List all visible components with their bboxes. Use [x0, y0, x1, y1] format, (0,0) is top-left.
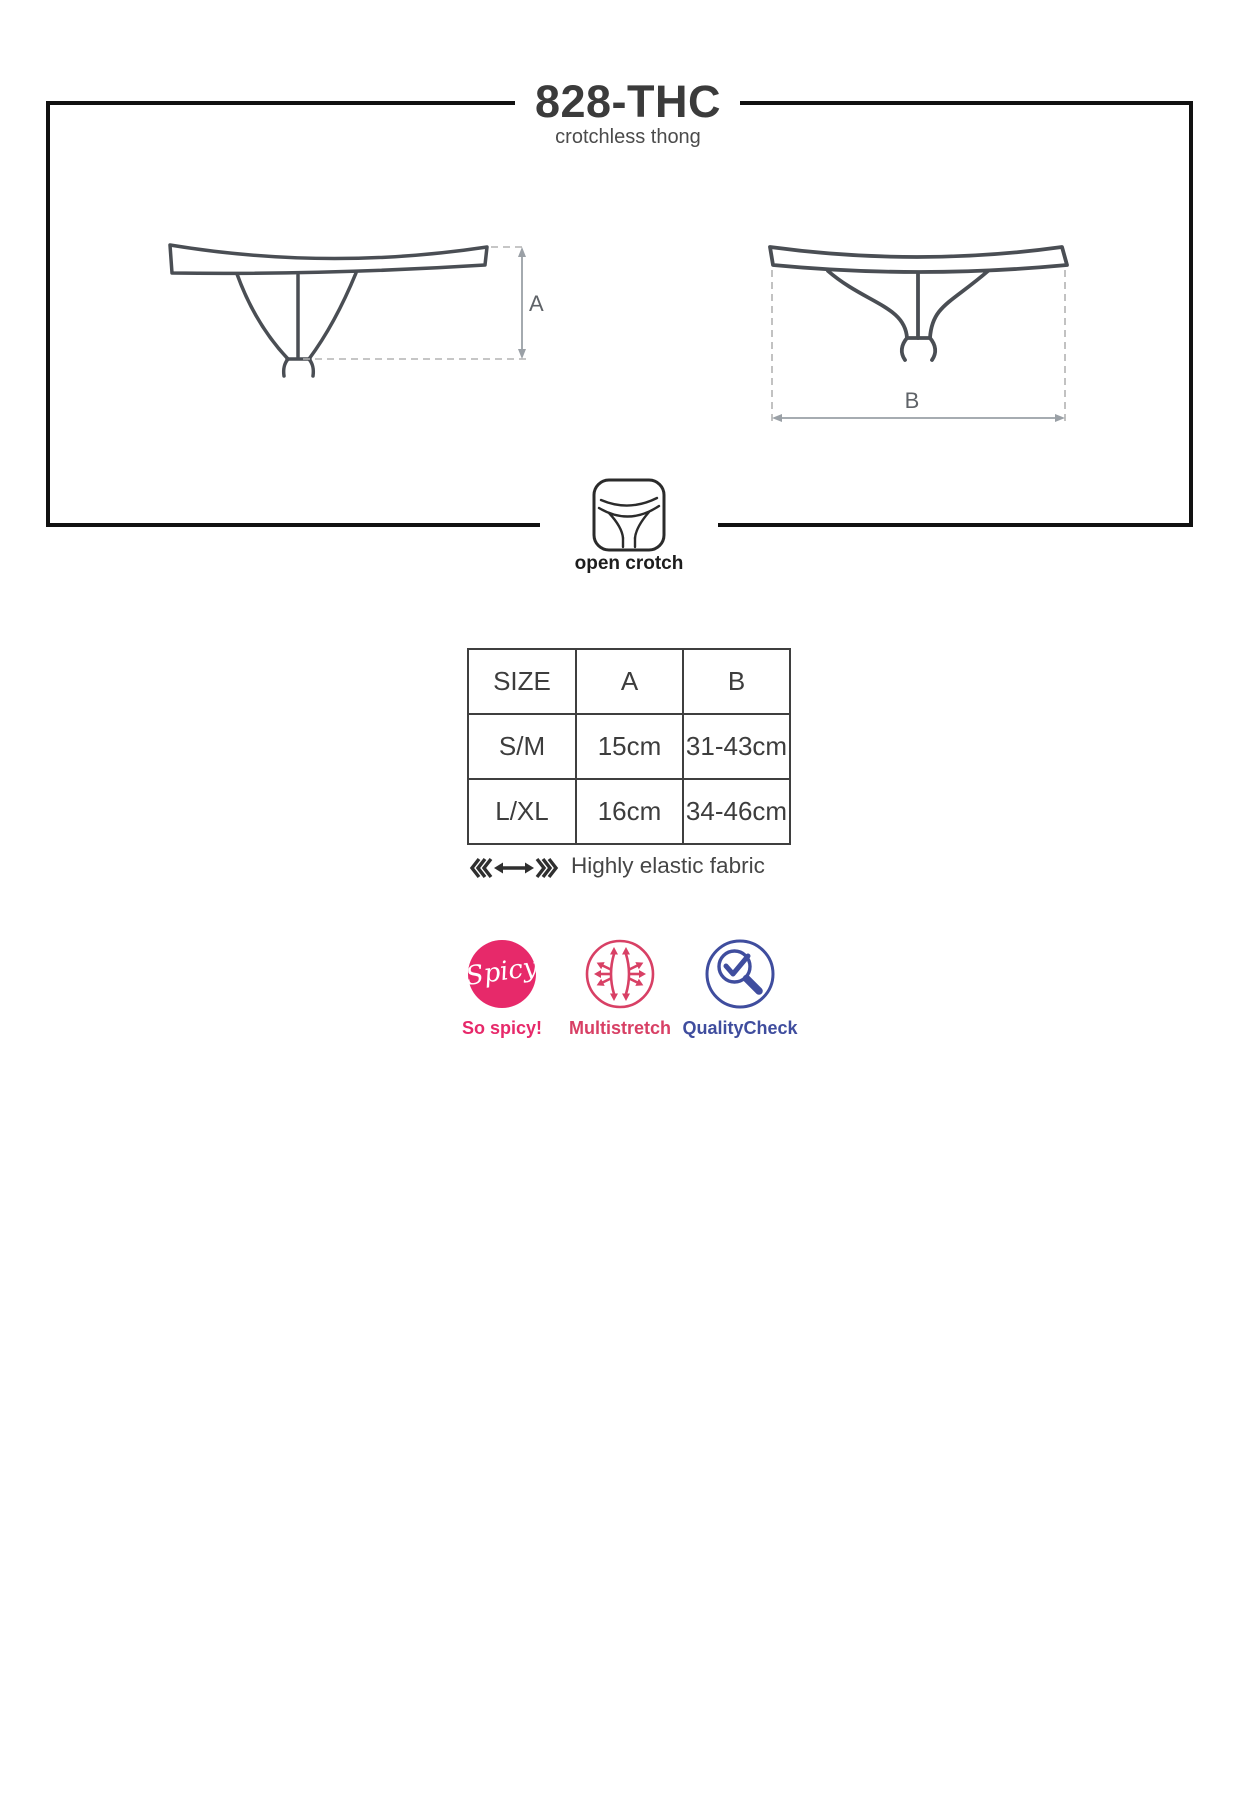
b-value-cell: 34-46cm [683, 779, 790, 844]
size-table: SIZE A B S/M 15cm 31-43cm L/XL 16cm 34-4… [467, 648, 791, 845]
size-table-row: S/M 15cm 31-43cm [468, 714, 790, 779]
spicy-badge-text: Spicy [464, 952, 540, 992]
size-table-header: SIZE [468, 649, 576, 714]
page-title: 828-THC [0, 76, 1256, 128]
elastic-fabric-label: Highly elastic fabric [571, 853, 765, 879]
product-subtitle: crotchless thong [0, 126, 1256, 149]
open-crotch-icon [592, 478, 666, 552]
size-table-header: B [683, 649, 790, 714]
front-view-drawing: A [160, 228, 550, 393]
quality-check-magnifier-icon [702, 936, 778, 1012]
dimension-b-arrow [772, 414, 1065, 422]
elastic-stretch-icon [470, 857, 558, 879]
spicy-badge-icon: Spicy [468, 940, 536, 1008]
size-table-header-row: SIZE A B [468, 649, 790, 714]
size-table-header: A [576, 649, 683, 714]
dimension-a-arrow [518, 247, 526, 359]
size-table-row: L/XL 16cm 34-46cm [468, 779, 790, 844]
size-cell: S/M [468, 714, 576, 779]
b-value-cell: 31-43cm [683, 714, 790, 779]
dimension-a-label: A [529, 291, 544, 316]
open-crotch-label: open crotch [529, 553, 729, 575]
dimension-b-label: B [905, 388, 920, 413]
size-cell: L/XL [468, 779, 576, 844]
spec-sheet-page: 828-THC crotchless thong A [0, 0, 1256, 1800]
multistretch-icon [584, 938, 656, 1010]
quality-check-label: QualityCheck [660, 1018, 820, 1039]
a-value-cell: 15cm [576, 714, 683, 779]
back-view-drawing: B [755, 228, 1075, 438]
a-value-cell: 16cm [576, 779, 683, 844]
